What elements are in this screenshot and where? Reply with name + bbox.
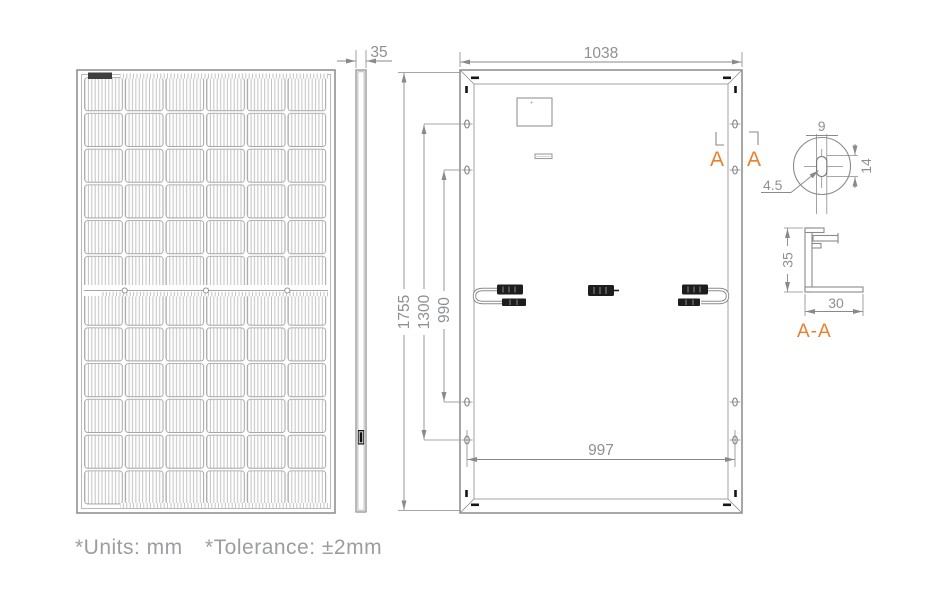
technical-drawing-page: 35 1755 1300 990 xyxy=(0,0,950,600)
top-bus-strip xyxy=(120,74,328,79)
solar-panel-dimension-drawing: 35 1755 1300 990 xyxy=(0,0,950,600)
tolerance-note: *Tolerance: ±2mm xyxy=(205,536,382,559)
section-hook xyxy=(812,244,821,249)
section-glass-slot xyxy=(813,236,838,242)
slot-hole xyxy=(817,157,827,177)
corner-screw xyxy=(734,490,737,497)
mount-span-width-label: 997 xyxy=(588,442,614,459)
mc4-plug xyxy=(678,299,700,307)
mc4-connector xyxy=(682,285,708,295)
dimension-mount-span-inner: 990 xyxy=(436,170,460,402)
frame-height-label: 35 xyxy=(780,252,796,268)
corner-screw xyxy=(471,77,479,80)
slot-radius-label: 4.5 xyxy=(763,177,783,193)
section-marker-a-right: A xyxy=(747,148,761,171)
section-top-lip xyxy=(805,228,824,233)
mc4-connector xyxy=(588,285,614,296)
section-wall xyxy=(805,228,812,292)
footnotes: *Units: mm *Tolerance: ±2mm xyxy=(75,536,382,559)
bottom-bus-strip xyxy=(120,503,328,508)
frame-depth-label: 30 xyxy=(828,295,844,311)
mc4-plug xyxy=(502,299,526,307)
units-note: *Units: mm xyxy=(75,536,183,559)
dimension-frame-depth: 30 xyxy=(805,294,863,316)
junction-box xyxy=(517,98,552,126)
barcode-label xyxy=(535,154,552,159)
mount-span-inner-label: 990 xyxy=(436,297,453,323)
corner-screw xyxy=(465,86,468,93)
corner-screw xyxy=(465,490,468,497)
section-title: A-A xyxy=(797,321,832,342)
corner-screw xyxy=(723,77,731,80)
section-marker-a-left: A xyxy=(710,148,724,171)
total-height-label: 1755 xyxy=(396,295,413,329)
mount-span-outer-label: 1300 xyxy=(416,294,433,329)
bus-joint-dot xyxy=(203,288,208,293)
mounting-hole-detail: 9 14 4.5 xyxy=(761,118,874,214)
bus-joint-dot xyxy=(122,288,127,293)
mc4-connector xyxy=(497,285,523,295)
dimension-side-thickness: 35 xyxy=(337,44,392,68)
slot-height-label: 14 xyxy=(858,158,874,174)
corner-screw xyxy=(734,86,737,93)
dimension-back-width: 1038 xyxy=(460,45,742,67)
middle-bus-band xyxy=(84,285,328,296)
side-view xyxy=(356,70,366,512)
side-thickness-label: 35 xyxy=(370,44,387,61)
frame-cross-section: 35 30 A-A xyxy=(780,228,864,342)
corner-screw xyxy=(723,504,731,507)
dimension-mount-span-outer: 1300 xyxy=(416,124,460,440)
back-width-label: 1038 xyxy=(584,45,618,62)
bus-joint-dot xyxy=(285,288,290,293)
front-view xyxy=(77,70,335,513)
dimension-frame-height: 35 xyxy=(780,228,804,292)
slot-width-label: 9 xyxy=(818,118,826,134)
junction-box-dot xyxy=(531,102,533,104)
section-cut-bracket-right xyxy=(749,132,758,145)
nameplate-chip xyxy=(88,73,112,80)
section-bottom-flange xyxy=(805,287,863,292)
corner-screw xyxy=(471,504,479,507)
